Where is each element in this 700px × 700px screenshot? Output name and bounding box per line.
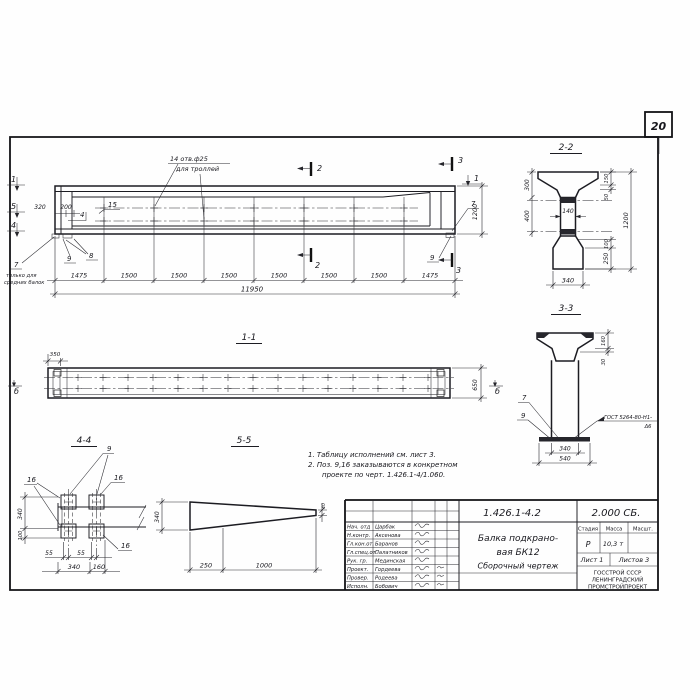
- org-line-1: ГОССТРОЙ СССР: [594, 570, 642, 577]
- svg-text:б: б: [495, 387, 500, 396]
- segment-dim: 1500: [171, 272, 188, 280]
- dim-50: 50: [604, 193, 610, 200]
- row-role: Н.контр.: [347, 533, 370, 539]
- flange-plan: [48, 368, 450, 398]
- dim-150: 150: [604, 173, 610, 184]
- drawing-canvas: 20 14 отв.ф25 для троллей 1: [0, 0, 700, 700]
- cut-mark-3: 3 3: [438, 156, 463, 275]
- svg-text:8: 8: [89, 252, 94, 260]
- section-title: 1-1: [242, 333, 257, 343]
- svg-text:16: 16: [114, 474, 123, 482]
- dim-55: 55: [45, 550, 53, 557]
- drawing-title-3: Сборочный чертеж: [478, 562, 560, 571]
- svg-text:б: б: [14, 387, 19, 396]
- svg-text:5: 5: [11, 202, 16, 211]
- org-line-2: ЛЕНИНГРАДСКИЙ: [592, 577, 644, 584]
- dim-350: 350: [50, 352, 61, 358]
- segment-dim: 1475: [422, 272, 439, 280]
- break-lines: [137, 505, 146, 530]
- cut-mark-2: 2 2: [297, 162, 322, 270]
- rail-pad-right: [580, 333, 593, 338]
- dim-40: 40: [321, 503, 327, 509]
- top-flange: [537, 333, 593, 361]
- mass-value: 10,3 т: [603, 540, 624, 548]
- note-line-3: проекте по черт. 1.426.1-4/1.060.: [322, 471, 445, 479]
- dim-1200: 1200: [622, 212, 630, 229]
- doc-code: 2.000 СБ.: [592, 508, 641, 519]
- drawing-title-2: вая БК12: [496, 548, 539, 558]
- dim-55: 55: [77, 550, 85, 557]
- doc-number: 1.426.1-4.2: [483, 508, 541, 519]
- section-mark-b-right: б: [489, 380, 503, 396]
- dim-250: 250: [603, 253, 610, 265]
- dim-340: 340: [154, 511, 161, 523]
- dim-100: 100: [18, 530, 24, 541]
- taper-plate: [190, 502, 316, 530]
- row-role: Проект.: [347, 567, 368, 573]
- dim-160: 160: [93, 563, 105, 571]
- row-name: Аксенова: [374, 533, 401, 539]
- top-flange: [538, 172, 598, 198]
- pos-label-16-top: 16: [101, 474, 125, 494]
- dim-400: 400: [524, 210, 531, 222]
- staff-rows: Нач. отд Царбак Н.контр. Аксенова Гл.кон…: [347, 524, 444, 590]
- title-block: 1.426.1-4.2 2.000 СБ. Балка подкрано- ва…: [345, 500, 658, 591]
- svg-text:15: 15: [108, 201, 117, 209]
- segment-dim: 1500: [371, 272, 388, 280]
- dim-1200: 1200: [471, 204, 479, 221]
- svg-text:только для: только для: [6, 273, 37, 279]
- row-role: Нач. отд: [347, 525, 371, 531]
- svg-text:средних балок: средних балок: [4, 280, 45, 286]
- section-3-3: 3-3 160 30 ГОСТ 5264-80-Н1- Δ6 7 9 340: [517, 304, 658, 466]
- dim-100: 100: [604, 238, 610, 249]
- holes-row1: [75, 374, 432, 381]
- weld-spec: ГОСТ 5264-80-Н1-: [604, 415, 652, 421]
- row-name: Баранов: [375, 542, 398, 548]
- svg-text:2: 2: [315, 261, 320, 270]
- svg-text:1: 1: [474, 174, 479, 183]
- pos-label-9: 9: [517, 412, 552, 440]
- beam-outline: [55, 186, 455, 234]
- dim-30: 30: [601, 358, 607, 365]
- dim-200: 200: [60, 204, 72, 211]
- row-name: Мединская: [375, 559, 405, 565]
- row-name: Бобович: [375, 584, 398, 590]
- sheets-total: Листов 3: [618, 556, 649, 564]
- weld-size: Δ6: [644, 424, 653, 430]
- svg-text:9: 9: [521, 412, 526, 420]
- sheet-count: Лист 1: [580, 556, 604, 564]
- dim-540: 540: [559, 456, 571, 463]
- segment-dim: 1500: [271, 272, 288, 280]
- end-note: 7 только для средних балок: [4, 237, 54, 286]
- dim-340: 340: [562, 277, 574, 285]
- stage-label: Стадия: [578, 527, 598, 533]
- svg-text:16: 16: [27, 476, 36, 484]
- sheet-frame: 20: [10, 112, 672, 590]
- svg-text:7: 7: [522, 394, 527, 402]
- row-role: Рук. гр.: [347, 559, 367, 565]
- note-line-1: 1. Таблицу исполнений см. лист 3.: [308, 451, 436, 459]
- bottom-block: [553, 236, 583, 269]
- row-role: Гл.кон.от.: [347, 542, 374, 548]
- scale-label: Масшт.: [633, 527, 653, 533]
- svg-text:9: 9: [67, 255, 72, 263]
- segment-dim: 1500: [221, 272, 238, 280]
- segment-dim: 1500: [321, 272, 338, 280]
- notes: 1. Таблицу исполнений см. лист 3. 2. Поз…: [308, 451, 458, 479]
- pos-label-15: 15: [99, 201, 120, 214]
- dim-160: 160: [601, 335, 607, 346]
- section-2-2: 2-2 300 400 140 150 50 100 250 1200 340: [524, 143, 637, 289]
- row-name: Гордеева: [375, 567, 401, 573]
- total-dim: 11950: [241, 286, 264, 294]
- mass-label: Масса: [606, 527, 623, 533]
- svg-text:7: 7: [14, 261, 19, 269]
- row-role: Провер.: [347, 576, 369, 582]
- section-mark-1-right: 1: [462, 174, 482, 186]
- pos-label-4: 4: [68, 211, 86, 221]
- row-name: Родеева: [375, 576, 398, 582]
- svg-text:2: 2: [317, 164, 322, 173]
- dim-340b: 340: [68, 563, 80, 571]
- bottom-plate: [539, 437, 590, 442]
- note-line-2: 2. Поз. 9,16 заказываются в конкретном: [308, 461, 458, 469]
- section-4-4: 4-4 9 16 16 16 340: [17, 436, 146, 574]
- section-title: 4-4: [77, 436, 92, 446]
- section-title: 2-2: [559, 143, 574, 153]
- svg-text:3: 3: [458, 156, 463, 165]
- section-5-5: 5-5 340 40 250 1000: [154, 436, 327, 573]
- svg-text:9: 9: [107, 445, 112, 453]
- hole-note-line2: для троллей: [175, 165, 219, 173]
- svg-text:1: 1: [11, 175, 16, 184]
- row-name: Палатников: [375, 550, 408, 556]
- section-1-1: 1-1 350 650 б б: [8, 333, 503, 402]
- section-title: 5-5: [237, 436, 252, 446]
- pos-label-16-left: 16: [24, 476, 60, 525]
- row-name: Царбак: [375, 525, 396, 531]
- dim-250: 250: [200, 562, 212, 570]
- dim-300: 300: [524, 179, 531, 191]
- segment-dim: 1500: [121, 272, 138, 280]
- org-line-3: ПРОМСТРОЙПРОЕКТ: [588, 584, 648, 591]
- svg-text:9: 9: [430, 254, 435, 262]
- pos-label-9-right: 9: [427, 236, 451, 262]
- dim-140: 140: [562, 208, 574, 215]
- holes-row2: [75, 385, 432, 392]
- drawing-title-1: Балка подкрано-: [478, 534, 558, 544]
- weld-callout: ГОСТ 5264-80-Н1- Δ6: [575, 415, 658, 438]
- svg-text:3: 3: [456, 266, 461, 275]
- dim-320: 320: [34, 204, 46, 211]
- pos-label-16-bottom: 16: [103, 535, 132, 551]
- bolt-crosses: [65, 498, 101, 535]
- sheet-number: 20: [651, 120, 667, 133]
- dim-340: 340: [559, 446, 571, 453]
- row-role: Исполн.: [347, 584, 369, 590]
- row-role: Гл.спец.от.: [347, 550, 377, 556]
- svg-text:16: 16: [121, 542, 130, 550]
- stage-value: Р: [586, 540, 591, 549]
- rail-pad-left: [537, 333, 550, 338]
- dim-340: 340: [17, 508, 24, 520]
- svg-text:4: 4: [80, 211, 84, 219]
- hole-note-line1: 14 отв.ф25: [170, 155, 208, 163]
- segment-dim: 1475: [71, 272, 88, 280]
- drawing-sheet: 20 14 отв.ф25 для троллей 1: [0, 0, 700, 700]
- signatures: [415, 524, 444, 587]
- svg-text:4: 4: [11, 221, 16, 230]
- section-title: 3-3: [559, 304, 574, 314]
- dim-1000: 1000: [256, 562, 273, 570]
- main-elevation-view: 14 отв.ф25 для троллей 1 5 4 1: [4, 155, 488, 298]
- dim-650: 650: [472, 379, 479, 391]
